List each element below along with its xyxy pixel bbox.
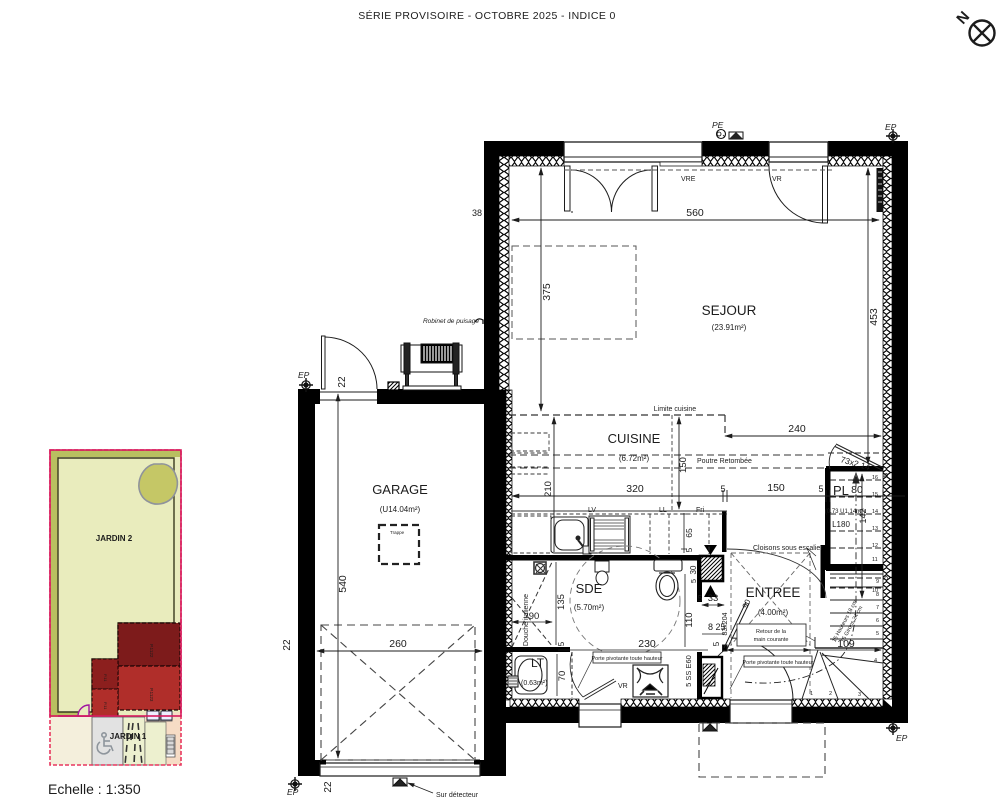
svg-text:VRE: VRE: [681, 176, 696, 183]
svg-text:P.1123: P.1123: [149, 688, 154, 702]
svg-text:16: 16: [872, 475, 878, 481]
svg-text:70: 70: [557, 671, 568, 682]
svg-text:Robinet de puisage: Robinet de puisage: [423, 318, 479, 325]
svg-text:EP: EP: [885, 122, 897, 132]
svg-text:2: 2: [829, 691, 832, 697]
svg-text:150: 150: [678, 457, 689, 473]
svg-text:10: 10: [872, 588, 878, 594]
svg-text:22: 22: [323, 781, 334, 793]
svg-text:Sur détecteur: Sur détecteur: [436, 792, 479, 799]
svg-text:Retour de la: Retour de la: [756, 629, 787, 635]
svg-text:EP: EP: [298, 370, 310, 380]
svg-text:210: 210: [543, 481, 554, 497]
svg-text:P.11: P.11: [103, 702, 108, 710]
svg-text:12: 12: [872, 543, 878, 549]
svg-text:110: 110: [684, 612, 695, 627]
svg-text:JARDIN 2: JARDIN 2: [96, 534, 133, 543]
svg-text:Porte pivotante toute hauteur: Porte pivotante toute hauteur: [743, 660, 814, 666]
svg-text:VR: VR: [618, 683, 628, 690]
svg-text:Porte pivotante toute hauteur: Porte pivotante toute hauteur: [592, 656, 663, 662]
svg-text:Cloisons sous escalier: Cloisons sous escalier: [753, 545, 823, 552]
svg-text:P.11: P.11: [103, 674, 108, 682]
svg-text:EP: EP: [287, 787, 299, 797]
svg-text:5: 5: [689, 579, 698, 583]
svg-text:LT: LT: [531, 656, 545, 670]
svg-text:30: 30: [689, 565, 698, 574]
svg-text:240: 240: [788, 423, 806, 435]
svg-text:SÉRIE PROVISOIRE - OCTOBRE 202: SÉRIE PROVISOIRE - OCTOBRE 2025 - INDICE…: [358, 9, 616, 22]
svg-text:13: 13: [872, 526, 878, 532]
svg-text:5: 5: [881, 576, 890, 580]
svg-text:JARDIN 1: JARDIN 1: [110, 732, 147, 741]
svg-text:320: 320: [626, 483, 644, 495]
svg-text:N: N: [953, 8, 973, 27]
svg-text:5: 5: [818, 484, 823, 494]
svg-text:5: 5: [720, 484, 725, 494]
svg-text:142: 142: [858, 508, 868, 523]
svg-text:P.1122: P.1122: [149, 644, 154, 658]
svg-text:Poutre Retombée: Poutre Retombée: [697, 458, 752, 465]
svg-text:65: 65: [684, 528, 694, 538]
svg-text:Douche italienne: Douche italienne: [523, 594, 530, 646]
svg-text:(4.00m²): (4.00m²): [758, 608, 789, 617]
svg-text:22: 22: [282, 639, 293, 651]
svg-text:SDE: SDE: [576, 581, 603, 596]
svg-text:SEJOUR: SEJOUR: [702, 303, 757, 318]
svg-text:230: 230: [638, 638, 656, 650]
svg-text:1: 1: [810, 691, 813, 697]
svg-text:CUISINE: CUISINE: [608, 431, 661, 446]
svg-text:453: 453: [868, 308, 880, 326]
svg-text:135: 135: [556, 594, 567, 610]
svg-text:VR: VR: [772, 176, 782, 183]
svg-text:4: 4: [874, 658, 877, 664]
svg-text:14: 14: [872, 509, 878, 515]
svg-text:375: 375: [541, 283, 553, 301]
svg-text:(23.91m²): (23.91m²): [712, 323, 747, 332]
svg-text:560: 560: [686, 207, 704, 219]
svg-text:15: 15: [872, 492, 878, 498]
svg-text:3: 3: [858, 692, 861, 698]
svg-text:5 SS E60: 5 SS E60: [684, 655, 693, 687]
svg-text:5: 5: [712, 641, 721, 646]
svg-text:7: 7: [876, 605, 879, 611]
svg-text:22: 22: [337, 376, 348, 388]
svg-text:6: 6: [876, 618, 879, 624]
svg-text:540: 540: [337, 575, 349, 593]
svg-text:LV: LV: [588, 507, 596, 514]
svg-text:11: 11: [872, 557, 878, 563]
svg-text:Limite cuisine: Limite cuisine: [654, 406, 697, 413]
svg-text:LL: LL: [659, 507, 667, 514]
svg-text:9: 9: [876, 579, 879, 585]
svg-text:GARAGE: GARAGE: [372, 482, 428, 497]
svg-text:Fri: Fri: [696, 507, 705, 514]
svg-text:(0.63m²): (0.63m²): [521, 680, 547, 687]
svg-text:PE: PE: [712, 120, 724, 130]
svg-text:5: 5: [881, 473, 890, 477]
svg-text:5: 5: [685, 547, 694, 552]
svg-text:(5.70m²): (5.70m²): [574, 603, 605, 612]
svg-text:Echelle : 1:350: Echelle : 1:350: [48, 781, 141, 797]
svg-text:5: 5: [698, 594, 703, 603]
svg-text:L180: L180: [832, 520, 850, 529]
svg-text:Trappe: Trappe: [390, 530, 405, 535]
svg-text:(U14.04m²): (U14.04m²): [380, 505, 421, 514]
svg-text:5: 5: [876, 631, 879, 637]
svg-text:90: 90: [529, 611, 540, 622]
svg-text:38: 38: [472, 208, 482, 218]
svg-text:ENTREE: ENTREE: [746, 585, 801, 600]
svg-text:260: 260: [389, 638, 407, 650]
svg-text:5: 5: [557, 641, 566, 646]
svg-text:main courante: main courante: [754, 637, 789, 643]
svg-text:EP: EP: [896, 733, 908, 743]
svg-text:33: 33: [708, 593, 719, 604]
svg-text:150: 150: [767, 482, 785, 494]
svg-text:83x204: 83x204: [722, 612, 729, 635]
svg-text:80: 80: [851, 484, 863, 496]
